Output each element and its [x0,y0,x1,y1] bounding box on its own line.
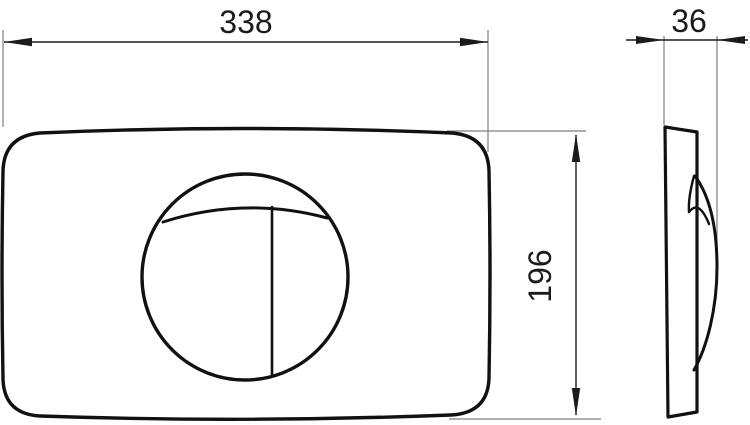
depth-arrowhead-right-icon [717,36,745,44]
dimension-width: 338 [4,4,488,46]
width-arrowhead-left-icon [4,38,32,46]
height-arrowhead-top-icon [572,134,580,162]
side-profile-outline [665,127,697,417]
width-arrowhead-right-icon [460,38,488,46]
dimension-depth: 36 [626,3,748,44]
dimension-height: 196 [522,134,580,416]
side-view [665,127,717,417]
technical-drawing-canvas: 338 196 36 [0,0,750,425]
plate-outline [2,129,490,420]
height-arrowhead-bottom-icon [572,388,580,416]
depth-dimension-label: 36 [671,3,707,39]
width-dimension-label: 338 [219,4,272,40]
depth-arrowhead-left-icon [636,36,664,44]
height-dimension-label: 196 [522,249,558,302]
front-view [2,129,490,420]
flush-plate-dimension-drawing: 338 196 36 [0,0,750,425]
